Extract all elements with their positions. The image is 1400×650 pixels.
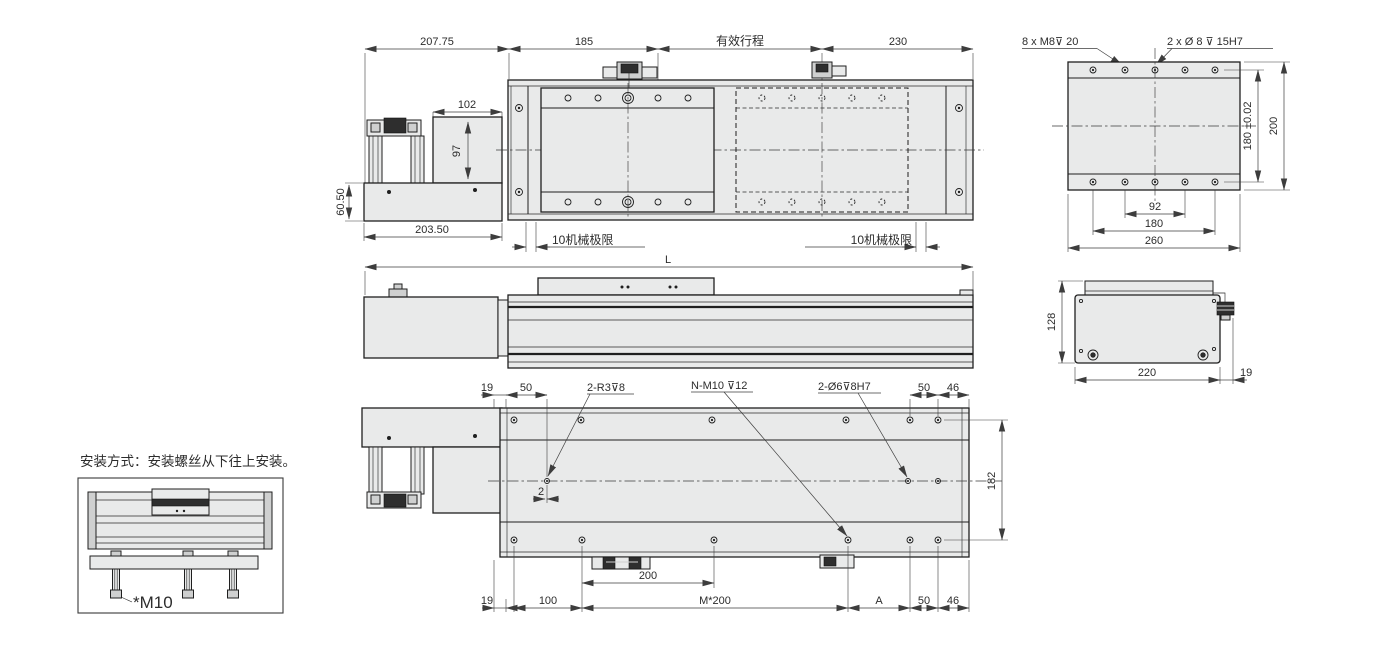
- plate-body: [1052, 48, 1256, 202]
- dim-19-end: 19: [1240, 367, 1252, 379]
- rail-end-tab: [960, 290, 973, 295]
- dim-180-tol: 180 ±0.02: [1242, 102, 1254, 151]
- dim-97: 97: [451, 145, 463, 157]
- limit-sensor-right: [812, 62, 846, 78]
- dim-102: 102: [458, 99, 476, 111]
- dim-92: 92: [1149, 201, 1161, 213]
- dim-19-bottom: 19: [481, 595, 493, 607]
- dim-185: 185: [575, 36, 593, 48]
- callout-m10: N-M10 ⊽12: [691, 380, 747, 392]
- callout-dowel-bottom: 2-Ø6⊽8H7: [818, 381, 871, 393]
- installation-note: 安装方式：安装螺丝从下往上安装。: [80, 454, 296, 469]
- dim-50-bottom: 50: [918, 595, 930, 607]
- bolt-size-label: *M10: [133, 593, 173, 612]
- dim-60-50: 60.50: [335, 188, 347, 216]
- carriage-front: [538, 278, 714, 295]
- dim-m200: M*200: [699, 595, 731, 607]
- rail-bottom: [488, 408, 1002, 557]
- callout-m8-holes: 8 x M8⊽ 20: [1022, 36, 1078, 48]
- dim-220: 220: [1138, 367, 1156, 379]
- top-plan-view: 207.75 185 有效行程 230 102 97: [335, 33, 984, 252]
- coupling-housing: [498, 300, 508, 356]
- label-mech-limit-right: 10机械极限: [851, 232, 912, 247]
- dim-50-top-right: 50: [918, 382, 930, 394]
- label-mech-limit-left: 10机械极限: [552, 232, 613, 247]
- inset-mounting-plate: [90, 556, 258, 569]
- dim-182: 182: [986, 472, 998, 490]
- dim-180: 180: [1145, 218, 1163, 230]
- dim-207-75: 207.75: [420, 36, 454, 48]
- linear-stage-drawing: 207.75 185 有效行程 230 102 97: [0, 0, 1400, 650]
- dim-200-bottom: 200: [639, 570, 657, 582]
- dim-A: A: [875, 595, 883, 607]
- limit-sensor-bottom-right: [820, 555, 854, 568]
- dim-19-top: 19: [481, 382, 493, 394]
- bottom-view: 19 50 50 46 2-R3⊽8 N-M10 ⊽12 2-Ø6⊽8H7 2: [362, 380, 1008, 612]
- dim-203-50: 203.50: [415, 224, 449, 236]
- motor-base-plate: [364, 183, 502, 221]
- installation-inset: 安装方式：安装螺丝从下往上安装。: [78, 454, 296, 613]
- carriage-plan: [541, 83, 714, 217]
- dim-L: L: [665, 254, 671, 266]
- dim-128: 128: [1046, 313, 1058, 331]
- dim-200-plate: 200: [1268, 117, 1280, 135]
- motor-connector: [384, 118, 406, 133]
- limit-sensor-bottom-left: [592, 557, 650, 569]
- front-view: L: [364, 254, 973, 368]
- callout-r3: 2-R3⊽8: [587, 382, 625, 394]
- inset-rail-side: [88, 489, 272, 549]
- dim-230: 230: [889, 36, 907, 48]
- dim-100: 100: [539, 595, 557, 607]
- end-top-plate: [1085, 281, 1213, 295]
- dim-effective-stroke: 有效行程: [716, 33, 764, 48]
- gearbox-block: [433, 117, 502, 183]
- motor-assembly-plan: [364, 117, 502, 221]
- dim-260: 260: [1145, 235, 1163, 247]
- mech-limit-left: 10机械极限: [512, 222, 645, 252]
- motor-leg-left: [369, 136, 382, 183]
- callout-dowel-holes: 2 x Ø 8 ⊽ 15H7: [1167, 36, 1243, 48]
- motor-base-plate-bottom: [362, 408, 502, 447]
- dim-2: 2: [538, 486, 544, 498]
- carriage-plate-view: 8 x M8⊽ 20 2 x Ø 8 ⊽ 15H7: [1022, 36, 1290, 252]
- dim-46-bottom: 46: [947, 595, 959, 607]
- motor-front: [364, 284, 508, 358]
- motor-leg-right: [411, 136, 424, 183]
- motor-assembly-bottom: [362, 408, 502, 513]
- mech-limit-right: 10机械极限: [805, 222, 940, 252]
- dim-46-top: 46: [947, 382, 959, 394]
- dim-50-top: 50: [520, 382, 532, 394]
- end-view: 128 220 19: [1046, 281, 1252, 384]
- rail-front: [508, 290, 973, 368]
- cad-drawing-sheet: 207.75 185 有效行程 230 102 97: [0, 0, 1400, 650]
